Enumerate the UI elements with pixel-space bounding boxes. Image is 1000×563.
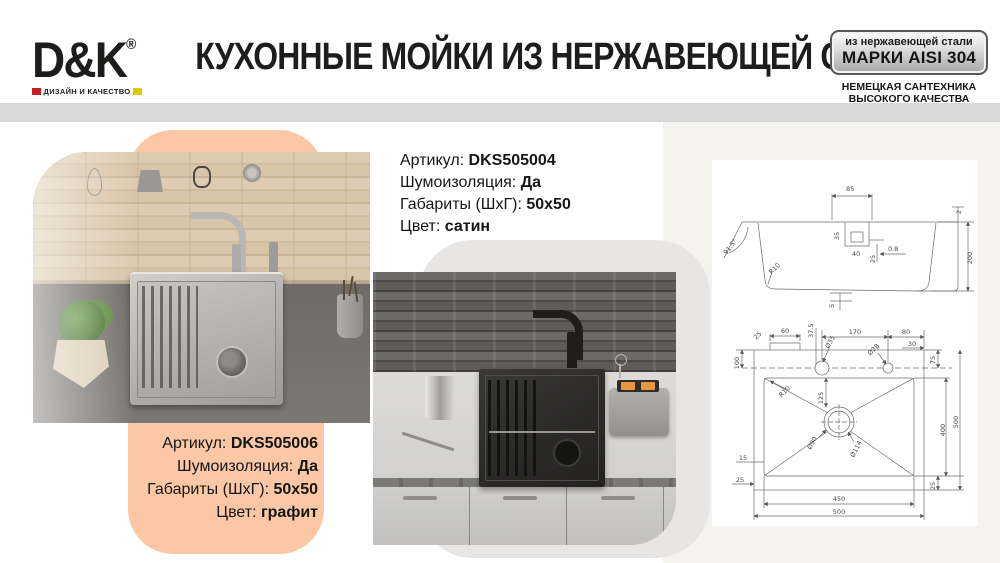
dim-label: Ø90 bbox=[806, 435, 819, 451]
spec-value: сатин bbox=[445, 218, 490, 235]
cabinet-handle bbox=[403, 496, 437, 500]
spec-value: DKS505006 bbox=[231, 435, 318, 452]
dim-label: 5 bbox=[828, 304, 836, 308]
technical-drawing-card: 85 35 40 25 0.8 2 200 91.5° R10 5 bbox=[712, 160, 978, 526]
spec-row: Габариты (ШхГ): 50х50 bbox=[400, 194, 571, 216]
spec-label: Артикул: bbox=[162, 435, 226, 452]
spec-label: Цвет: bbox=[216, 504, 256, 521]
dim-label: 125 bbox=[817, 392, 825, 404]
photo-fade-overlay bbox=[33, 152, 370, 423]
dim-label: 450 bbox=[833, 495, 845, 503]
dim-label: 30 bbox=[908, 340, 916, 348]
aisi-badge: из нержавеющей стали МАРКИ AISI 304 bbox=[830, 30, 988, 75]
slate-backsplash bbox=[373, 272, 676, 372]
dim-label: 80 bbox=[902, 328, 910, 336]
dish-rack bbox=[488, 380, 536, 476]
brochure-page: D&K® ДИЗАЙН И КАЧЕСТВО КУХОННЫЕ МОЙКИ ИЗ… bbox=[0, 0, 1000, 563]
dk-logo-letters: D&K bbox=[32, 32, 126, 88]
spec-value: DKS505004 bbox=[469, 152, 556, 169]
dim-label: 75 bbox=[929, 356, 937, 364]
spec-row: Артикул: DKS505006 bbox=[96, 432, 318, 455]
spec-value: 50х50 bbox=[526, 196, 571, 213]
dim-label: 0.8 bbox=[888, 245, 898, 253]
dim-label: 500 bbox=[833, 508, 845, 516]
dim-label: 2 bbox=[955, 210, 963, 214]
dim-label: 25 bbox=[929, 482, 937, 490]
glass-stem bbox=[619, 364, 621, 378]
chrome-tumbler bbox=[425, 376, 455, 420]
toaster-slot bbox=[617, 380, 659, 392]
spec-label: Шумоизоляция: bbox=[177, 458, 293, 475]
spec-block-dks505004: Артикул: DKS505004 Шумоизоляция: Да Габа… bbox=[400, 150, 571, 238]
quality-caption: НЕМЕЦКАЯ САНТЕХНИКА ВЫСОКОГО КАЧЕСТВА bbox=[830, 81, 988, 105]
cabinet-handle bbox=[601, 496, 635, 500]
tagline-yellow-bar bbox=[133, 88, 142, 95]
black-faucet-base bbox=[567, 332, 577, 370]
product-photo-graphite-sink bbox=[373, 272, 676, 545]
dim-label: 85 bbox=[846, 185, 854, 193]
section-view bbox=[724, 194, 974, 310]
dim-label: Ø114 bbox=[849, 439, 864, 458]
section-dimensions: 85 35 40 25 0.8 2 200 91.5° R10 5 bbox=[722, 185, 974, 308]
aisi-badge-block: из нержавеющей стали МАРКИ AISI 304 НЕМЕ… bbox=[830, 30, 988, 105]
cabinet-handle bbox=[503, 496, 537, 500]
dim-label: 40 bbox=[852, 250, 860, 258]
spec-row: Шумоизоляция: Да bbox=[400, 172, 571, 194]
tagline-red-bar bbox=[32, 88, 41, 95]
dim-label: 500 bbox=[952, 416, 960, 428]
technical-drawing: 85 35 40 25 0.8 2 200 91.5° R10 5 bbox=[712, 160, 978, 526]
header-divider-bar bbox=[0, 103, 1000, 122]
spec-row: Шумоизоляция: Да bbox=[96, 455, 318, 478]
dim-label: 200 bbox=[966, 252, 974, 264]
spec-label: Габариты (ШхГ): bbox=[147, 481, 269, 498]
dim-label: 37.5 bbox=[807, 324, 815, 338]
spec-row: Цвет: графит bbox=[96, 501, 318, 524]
page-title: КУХОННЫЕ МОЙКИ ИЗ НЕРЖАВЕЮЩЕЙ СТАЛИ bbox=[195, 36, 775, 79]
spec-row: Артикул: DKS505004 bbox=[400, 150, 571, 172]
dim-label: 15 bbox=[739, 454, 747, 462]
spec-value: 50х50 bbox=[274, 481, 319, 498]
spec-row: Цвет: сатин bbox=[400, 216, 571, 238]
product-photo-satin-sink bbox=[33, 152, 370, 423]
toast bbox=[621, 382, 635, 390]
graphite-sink bbox=[479, 368, 605, 487]
tagline-text: ДИЗАЙН И КАЧЕСТВО bbox=[44, 87, 131, 96]
dim-label: 25 bbox=[736, 476, 744, 484]
dim-label: 25 bbox=[869, 255, 877, 263]
badge-line2: МАРКИ AISI 304 bbox=[836, 48, 982, 68]
spec-row: Габариты (ШхГ): 50х50 bbox=[96, 478, 318, 501]
spec-value: графит bbox=[261, 504, 318, 521]
badge-line1: из нержавеющей стали bbox=[836, 36, 982, 48]
sink-crossbar bbox=[489, 431, 595, 433]
registered-mark: ® bbox=[126, 36, 136, 53]
spec-block-dks505006: Артикул: DKS505006 Шумоизоляция: Да Габа… bbox=[96, 432, 318, 524]
dim-label: 60 bbox=[781, 327, 789, 335]
dim-label: Ø35 bbox=[824, 334, 837, 350]
dim-label: 25 bbox=[752, 330, 764, 342]
spec-label: Цвет: bbox=[400, 218, 440, 235]
quality-caption-line1: НЕМЕЦКАЯ САНТЕХНИКА bbox=[830, 81, 988, 93]
dim-label: 170 bbox=[849, 328, 861, 336]
dim-label: R10 bbox=[767, 261, 782, 276]
dim-label: Ø28 bbox=[866, 342, 881, 357]
dim-label: 91.5° bbox=[722, 237, 739, 256]
spec-label: Артикул: bbox=[400, 152, 464, 169]
dk-logo-tagline: ДИЗАЙН И КАЧЕСТВО bbox=[32, 87, 142, 96]
spec-label: Шумоизоляция: bbox=[400, 174, 516, 191]
dk-logo: D&K® ДИЗАЙН И КАЧЕСТВО bbox=[32, 20, 142, 96]
spec-value: Да bbox=[521, 174, 541, 191]
dim-label: 35 bbox=[833, 232, 841, 240]
glass bbox=[615, 354, 627, 366]
dim-label: 400 bbox=[939, 424, 947, 436]
drain bbox=[553, 439, 581, 467]
spec-label: Габариты (ШхГ): bbox=[400, 196, 522, 213]
spec-value: Да bbox=[298, 458, 318, 475]
dim-label: 100 bbox=[733, 357, 741, 369]
toaster bbox=[609, 388, 669, 436]
dk-logo-text: D&K® bbox=[32, 20, 133, 85]
